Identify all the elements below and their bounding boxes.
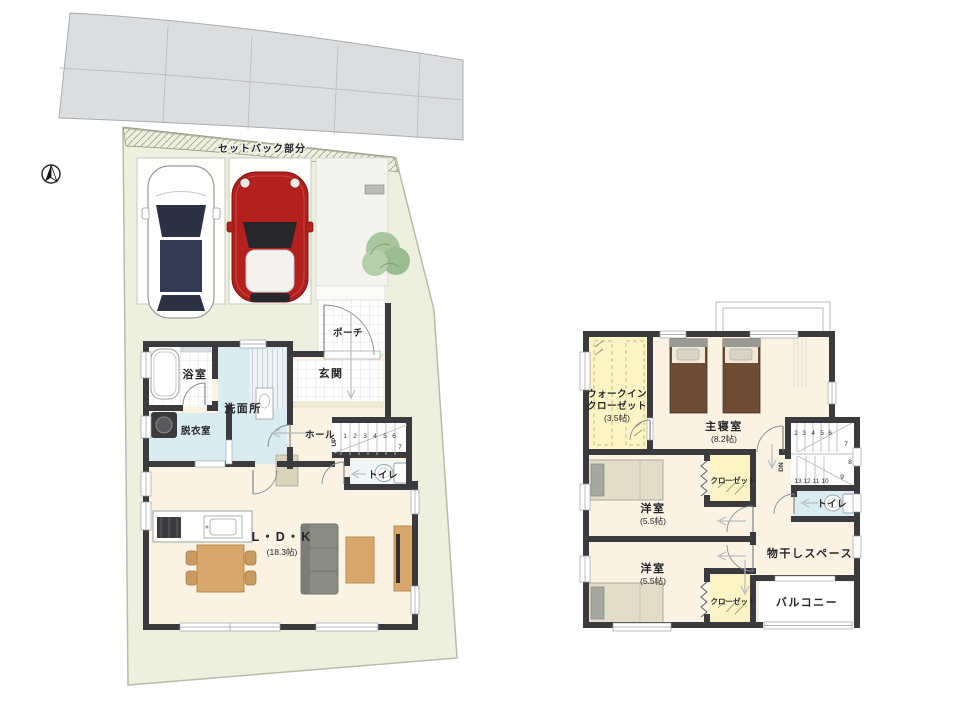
label-drying: 物干しスペース [767, 546, 853, 560]
label-toilet-1f: トイレ [368, 470, 398, 481]
stair-number: 5 [383, 433, 387, 440]
kitchen-counter [153, 511, 252, 542]
white-car [142, 166, 220, 318]
label-toilet-2f: トイレ [817, 499, 847, 510]
car-mirror [213, 208, 220, 219]
stair-number: 12 [803, 478, 811, 485]
headlight [240, 178, 250, 188]
label-bath: 浴室 [183, 367, 208, 381]
master-bed-1 [670, 339, 707, 413]
label-room2-size: (5.5帖) [640, 576, 666, 586]
label-hall: ホール [305, 430, 335, 441]
louver-strip [791, 338, 808, 387]
label-ldk: L・D・K [252, 530, 313, 544]
tv-board [394, 526, 413, 591]
stair-number: 8 [848, 459, 852, 466]
label-closet1: クローゼット [711, 475, 756, 485]
room1-bed [588, 460, 663, 500]
floor-plan-canvas: セットバック部分 [0, 0, 960, 720]
utility-box [365, 185, 384, 194]
setback-label: セットバック部分 [218, 142, 306, 155]
stair-number: 7 [398, 444, 402, 451]
label-master: 主寝室 [705, 419, 743, 433]
stair-number: 6 [828, 430, 832, 437]
stairs-down-label: DN [778, 462, 785, 472]
car-mirror [227, 222, 234, 232]
headlight [290, 178, 300, 188]
car-mirror [306, 222, 313, 232]
label-balcony: バルコニー [776, 596, 838, 609]
room2-bed [588, 583, 663, 623]
label-room1-size: (5.5帖) [640, 516, 666, 526]
washing-machine [151, 412, 177, 438]
label-porch: ポーチ [333, 327, 363, 339]
stair-number: 1 [343, 433, 347, 440]
roof-outline [716, 302, 830, 331]
red-car [227, 172, 313, 302]
master-bed-2 [723, 339, 760, 413]
road [59, 13, 463, 140]
stair-number: 11 [813, 478, 820, 485]
stair-number: 6 [392, 433, 396, 440]
stair-number: 2 [794, 430, 798, 437]
balcony-slider [775, 576, 835, 581]
label-dressing: 脱衣室 [181, 425, 211, 437]
label-wic-1: ウォークイン [587, 389, 647, 400]
stair-number: 5 [820, 430, 824, 437]
car-mirror [142, 208, 149, 219]
front-door-sill [324, 351, 380, 359]
stair-number: 3 [363, 433, 367, 440]
coffee-table [346, 537, 374, 583]
stair-number: 4 [811, 430, 815, 437]
floor2-plan: 2 3 4 5 6 7 8 9 13 12 11 10 DN [580, 302, 861, 631]
entrance-tile [293, 360, 383, 402]
sliding-door [226, 440, 232, 464]
label-wic-size: (3.5帖) [604, 413, 630, 423]
stair-number: 4 [373, 433, 377, 440]
label-master-size: (8.2帖) [711, 434, 737, 444]
label-room2: 洋室 [641, 561, 666, 575]
label-room1: 洋室 [641, 501, 666, 515]
stair-number: 2 [353, 433, 357, 440]
stair-number: 13 [794, 478, 802, 485]
label-entrance: 玄関 [319, 366, 344, 380]
label-washroom: 洗面所 [224, 401, 262, 415]
sliding-door [195, 461, 225, 467]
north-compass-icon [42, 165, 60, 183]
label-wic-2: クローゼット [587, 400, 647, 412]
label-ldk-size: (18.3帖) [267, 547, 298, 557]
stair-number: 3 [802, 430, 806, 437]
floor-plan-page: セットバック部分 [0, 0, 960, 720]
stair-number: 10 [821, 478, 829, 485]
label-closet2: クローゼット [711, 596, 756, 606]
stair-number: 7 [844, 441, 848, 448]
stair-number: 9 [840, 474, 844, 481]
